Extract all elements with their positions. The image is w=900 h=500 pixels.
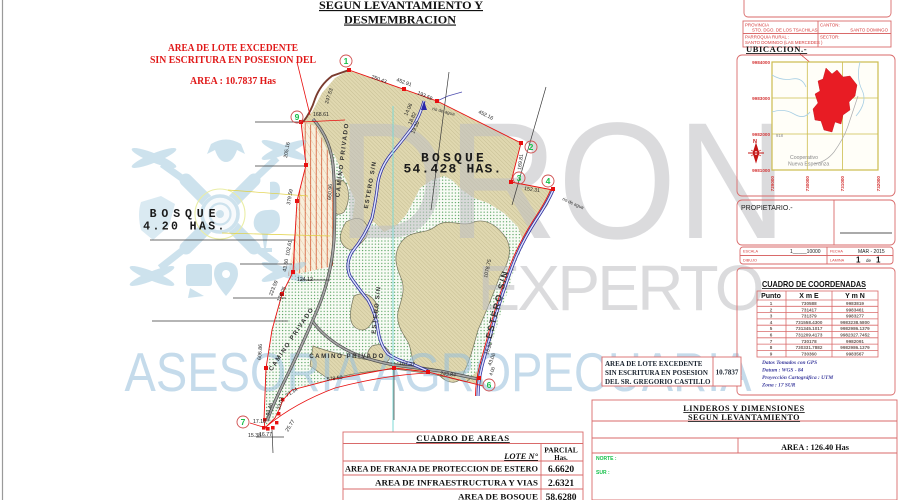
svg-text:FECHA: FECHA bbox=[830, 250, 843, 254]
svg-text:LAMINA: LAMINA bbox=[830, 259, 845, 263]
svg-text:1: 1 bbox=[344, 56, 349, 66]
svg-text:ESCALA: ESCALA bbox=[743, 250, 758, 254]
svg-text:STO. DGO. DE LOS TSACHILAS: STO. DGO. DE LOS TSACHILAS bbox=[752, 28, 818, 33]
svg-text:AREA DE INFRAESTRUCTURA Y VIAS: AREA DE INFRAESTRUCTURA Y VIAS bbox=[375, 478, 538, 488]
svg-text:3: 3 bbox=[770, 314, 773, 319]
svg-text:Punto: Punto bbox=[761, 293, 781, 300]
svg-text:4.20 HAS.: 4.20 HAS. bbox=[143, 221, 227, 234]
svg-text:Datos Tomados con GPS: Datos Tomados con GPS bbox=[761, 360, 817, 366]
svg-text:CUADRO DE AREAS: CUADRO DE AREAS bbox=[416, 433, 510, 443]
svg-text:17.18: 17.18 bbox=[253, 419, 266, 425]
svg-text:SANTO DOMINGO: SANTO DOMINGO bbox=[850, 28, 888, 33]
svg-text:9984000: 9984000 bbox=[752, 60, 770, 65]
svg-text:9983461: 9983461 bbox=[846, 307, 864, 312]
svg-text:9982986.1379: 9982986.1379 bbox=[840, 345, 870, 350]
svg-text:167.37: 167.37 bbox=[399, 361, 415, 368]
svg-text:730000: 730000 bbox=[805, 176, 810, 192]
svg-text:4: 4 bbox=[546, 176, 551, 186]
svg-text:731345.1017: 731345.1017 bbox=[796, 326, 823, 331]
svg-text:9: 9 bbox=[770, 351, 773, 356]
svg-text:168.61: 168.61 bbox=[313, 112, 329, 118]
svg-text:Has.: Has. bbox=[554, 454, 568, 462]
svg-text:DRON: DRON bbox=[337, 89, 787, 274]
svg-text:9983000: 9983000 bbox=[752, 96, 770, 101]
svg-text:CUADRO DE COORDENADAS: CUADRO DE COORDENADAS bbox=[762, 280, 866, 289]
svg-text:Y m N: Y m N bbox=[845, 293, 865, 300]
svg-text:650.96: 650.96 bbox=[327, 184, 334, 200]
svg-text:1_____10000: 1_____10000 bbox=[790, 249, 821, 255]
svg-text:DIBUJO: DIBUJO bbox=[743, 259, 757, 263]
svg-text:AREA DE LOTE EXCEDENTE: AREA DE LOTE EXCEDENTE bbox=[168, 43, 298, 54]
svg-text:SIN ESCRITURA EN POSESION DEL: SIN ESCRITURA EN POSESION DEL bbox=[150, 55, 316, 66]
svg-text:9: 9 bbox=[295, 112, 300, 122]
svg-text:1: 1 bbox=[856, 256, 861, 265]
svg-text:PROPIETARIO.-: PROPIETARIO.- bbox=[741, 205, 793, 212]
svg-text:8: 8 bbox=[770, 345, 773, 350]
svg-text:5: 5 bbox=[770, 326, 773, 331]
svg-text:PARROQUIA RURAL :: PARROQUIA RURAL : bbox=[745, 35, 789, 40]
svg-text:DEL SR. GREGORIO CASTILLO: DEL SR. GREGORIO CASTILLO bbox=[605, 378, 711, 386]
svg-text:730331.7882: 730331.7882 bbox=[796, 345, 823, 350]
svg-text:731558.4300: 731558.4300 bbox=[796, 320, 823, 325]
svg-text:AREA : 10.7837 Has: AREA : 10.7837 Has bbox=[190, 76, 276, 87]
svg-text:731000: 731000 bbox=[840, 176, 845, 192]
svg-text:452.91: 452.91 bbox=[395, 77, 412, 88]
svg-text:EXPERTO: EXPERTO bbox=[478, 252, 765, 324]
svg-text:730588: 730588 bbox=[801, 301, 817, 306]
svg-text:10.7837: 10.7837 bbox=[716, 369, 739, 377]
svg-text:731209.4173: 731209.4173 bbox=[796, 333, 823, 338]
svg-text:730178: 730178 bbox=[801, 339, 817, 344]
svg-text:Nueva Esperanza: Nueva Esperanza bbox=[788, 162, 829, 168]
svg-text:15.38: 15.38 bbox=[248, 433, 261, 439]
svg-text:732000: 732000 bbox=[876, 176, 881, 192]
svg-text:de: de bbox=[866, 258, 872, 263]
svg-text:MAR - 2015: MAR - 2015 bbox=[858, 249, 885, 255]
svg-text:AREA : 126.40 Has: AREA : 126.40 Has bbox=[781, 443, 849, 452]
svg-text:Datum : WGS - 84: Datum : WGS - 84 bbox=[761, 368, 804, 374]
svg-text:9981000: 9981000 bbox=[752, 168, 770, 173]
svg-text:729000: 729000 bbox=[770, 176, 775, 192]
svg-text:2.6321: 2.6321 bbox=[548, 479, 574, 489]
svg-text:CANTON:: CANTON: bbox=[820, 23, 840, 28]
svg-text:379.59: 379.59 bbox=[286, 189, 295, 206]
svg-text:SECTOR:: SECTOR: bbox=[820, 35, 839, 40]
svg-text:AREA DE FRANJA DE PROTECCION D: AREA DE FRANJA DE PROTECCION DE ESTERO bbox=[345, 464, 538, 474]
svg-text:3: 3 bbox=[517, 173, 522, 183]
svg-text:Proyección Cartográfica : UTM: Proyección Cartográfica : UTM bbox=[762, 375, 833, 381]
svg-text:4: 4 bbox=[770, 320, 773, 325]
svg-text:58.6280: 58.6280 bbox=[546, 493, 577, 500]
svg-text:SEGUN LEVANTAMIENTO: SEGUN LEVANTAMIENTO bbox=[688, 413, 800, 422]
svg-text:124.12: 124.12 bbox=[297, 277, 313, 283]
svg-text:9982986.1379: 9982986.1379 bbox=[840, 326, 870, 331]
svg-text:X m E: X m E bbox=[799, 293, 819, 300]
svg-text:LINDEROS Y DIMENSIONES: LINDEROS Y DIMENSIONES bbox=[683, 404, 804, 413]
svg-text:6.6620: 6.6620 bbox=[548, 465, 574, 475]
svg-text:UBICACION.-: UBICACION.- bbox=[746, 44, 807, 54]
svg-text:SIN ESCRITURA EN POSESION: SIN ESCRITURA EN POSESION bbox=[605, 369, 708, 377]
svg-text:AREA DE BOSQUE: AREA DE BOSQUE bbox=[458, 492, 538, 500]
svg-text:DESMEMBRACION: DESMEMBRACION bbox=[344, 15, 457, 27]
svg-text:2: 2 bbox=[770, 307, 773, 312]
svg-text:731417: 731417 bbox=[801, 307, 817, 312]
svg-text:Cooperativo: Cooperativo bbox=[790, 155, 818, 161]
svg-text:SUR :: SUR : bbox=[596, 470, 610, 476]
svg-text:Zona : 17 SUR: Zona : 17 SUR bbox=[761, 383, 796, 389]
svg-text:9982091: 9982091 bbox=[846, 339, 864, 344]
svg-text:9983819: 9983819 bbox=[846, 301, 864, 306]
svg-text:918: 918 bbox=[776, 133, 784, 138]
svg-text:7: 7 bbox=[241, 417, 246, 427]
svg-text:CAMINO PRIVADO: CAMINO PRIVADO bbox=[309, 353, 385, 360]
svg-text:9982000: 9982000 bbox=[752, 132, 770, 137]
svg-text:606.86: 606.86 bbox=[257, 344, 264, 360]
svg-text:LOTE N°: LOTE N° bbox=[503, 451, 538, 461]
svg-text:2: 2 bbox=[529, 142, 534, 152]
svg-text:6: 6 bbox=[770, 333, 773, 338]
svg-text:731379: 731379 bbox=[801, 314, 817, 319]
svg-text:1: 1 bbox=[876, 256, 881, 265]
svg-text:730360: 730360 bbox=[801, 351, 817, 356]
svg-text:9982327.7452: 9982327.7452 bbox=[840, 333, 870, 338]
svg-text:SEGUN LEVANTAMIENTO Y: SEGUN LEVANTAMIENTO Y bbox=[319, 0, 484, 12]
svg-text:BOSQUE: BOSQUE bbox=[150, 208, 221, 221]
svg-text:NORTE :: NORTE : bbox=[596, 456, 617, 462]
svg-text:9983277: 9983277 bbox=[846, 314, 864, 319]
svg-text:9983567: 9983567 bbox=[846, 351, 864, 356]
svg-text:AREA DE LOTE EXCEDENTE: AREA DE LOTE EXCEDENTE bbox=[605, 360, 703, 368]
svg-text:9983238.5800: 9983238.5800 bbox=[840, 320, 870, 325]
svg-text:1: 1 bbox=[770, 301, 773, 306]
svg-text:25.77: 25.77 bbox=[285, 419, 297, 433]
svg-text:6: 6 bbox=[487, 380, 492, 390]
svg-text:7: 7 bbox=[770, 339, 773, 344]
svg-text:54.428 HAS.: 54.428 HAS. bbox=[403, 162, 502, 177]
